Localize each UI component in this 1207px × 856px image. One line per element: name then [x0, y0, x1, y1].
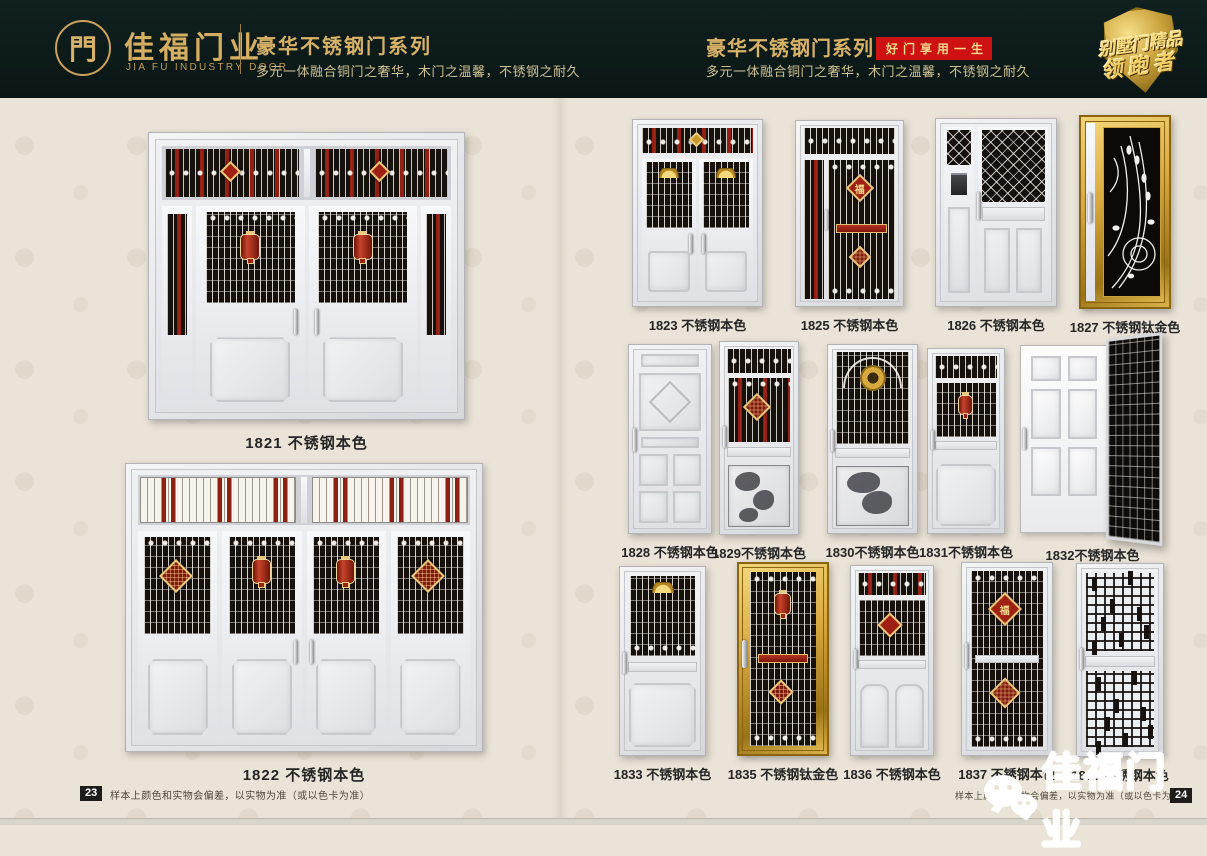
- product-card-1826: 1826 不锈钢本色: [935, 118, 1057, 334]
- logo-character: 門: [69, 28, 97, 68]
- door-image-1829: [719, 341, 799, 535]
- panel-grid: [639, 454, 701, 522]
- dots-row: [318, 214, 407, 223]
- brand-name: 佳福门业: [124, 23, 264, 67]
- transom-grille: [935, 356, 997, 378]
- etched-diamond: [649, 381, 691, 423]
- stile-grille: [426, 214, 446, 335]
- emboss-strip: [641, 437, 700, 448]
- dots-row: [828, 287, 895, 296]
- door-image-1830: [827, 344, 918, 534]
- main-grille: [750, 572, 816, 746]
- series-title-right: 豪华不锈钢门系列: [706, 32, 874, 61]
- transom-grille: [858, 573, 926, 595]
- mid-band: [1085, 656, 1155, 667]
- door-panel: [639, 454, 668, 486]
- page-fold: [552, 98, 568, 819]
- door-image-1826: [935, 118, 1057, 307]
- side-stile: [421, 206, 451, 408]
- transom-post: [301, 477, 307, 523]
- door-panel: [148, 659, 208, 735]
- wechat-eye: [994, 785, 999, 790]
- fan-ornament: [652, 582, 674, 593]
- main-leaf: [978, 127, 1048, 298]
- page-number-left: 23: [80, 786, 102, 801]
- dots-row: [971, 574, 1043, 583]
- knot-diamond: [159, 559, 193, 593]
- window-grille: [144, 537, 211, 634]
- product-card-1823: 1823 不锈钢本色: [632, 119, 763, 334]
- door-panel: [673, 454, 702, 486]
- door-panel: [323, 337, 403, 402]
- door-panel: [1068, 356, 1098, 381]
- door-panel: [1031, 389, 1061, 439]
- window-grille: [936, 383, 996, 437]
- main-grille: 福: [971, 571, 1043, 747]
- product-label: 1821 不锈钢本色: [245, 432, 368, 453]
- product-label: 1828 不锈钢本色: [621, 542, 719, 561]
- door-handle: [965, 643, 969, 669]
- product-label: 1829不锈钢本色: [712, 543, 806, 562]
- door-panel: [895, 684, 924, 748]
- product-card-1830: 1830不锈钢本色: [827, 344, 918, 561]
- door-body: 福: [804, 160, 895, 299]
- product-label: 1822 不锈钢本色: [243, 764, 366, 785]
- header-divider: [240, 24, 241, 74]
- header-bar: 門 佳福门业 JIA FU INDUSTRY DOOR 豪华不锈钢门系列 多元一…: [0, 0, 1207, 98]
- door-body: [162, 206, 451, 408]
- product-card-1821: 1821 不锈钢本色: [148, 132, 465, 453]
- peacock-art-panel: [1103, 127, 1161, 297]
- dots-row: [630, 644, 695, 653]
- etched-art-panel: [728, 465, 790, 527]
- dots-row: [229, 539, 296, 548]
- window-grille: [646, 162, 691, 229]
- door-handle: [831, 430, 835, 452]
- fu-diamond: [369, 161, 390, 182]
- door-panel: [1031, 447, 1061, 497]
- product-label: 1825 不锈钢本色: [801, 315, 899, 334]
- product-card-1827: 1827 不锈钢钛金色: [1079, 115, 1171, 336]
- lantern-ornament: [958, 395, 973, 415]
- door-panel: [1016, 228, 1043, 293]
- etch-motif: [739, 508, 758, 522]
- product-card-1831: 1831不锈钢本色: [927, 348, 1005, 561]
- product-label: 1832不锈钢本色: [1046, 545, 1140, 564]
- door-image-1833: [619, 566, 706, 756]
- door-handle: [1023, 428, 1027, 450]
- door-image-1836: [850, 565, 934, 756]
- dots-row: [750, 575, 816, 584]
- door-leaf: [391, 531, 470, 741]
- product-card-1833: 1833 不锈钢本色: [619, 566, 706, 783]
- door-panel: [316, 659, 376, 735]
- door-image-1827: [1079, 115, 1171, 309]
- main-grille: 福: [828, 160, 895, 299]
- door-panel: [400, 659, 460, 735]
- dots-row: [804, 137, 895, 146]
- lantern-ornament: [774, 593, 791, 615]
- dots-row: [935, 363, 997, 372]
- dots-row: [727, 357, 791, 366]
- product-label: 1830不锈钢本色: [826, 542, 920, 561]
- transom-grille: [315, 149, 449, 197]
- door-handle: [623, 652, 627, 674]
- wechat-eye: [1026, 801, 1030, 805]
- transom-post: [304, 149, 310, 197]
- door-handle: [294, 640, 298, 664]
- product-card-1835: 1835 不锈钢钛金色: [737, 562, 829, 783]
- product-card-1832: 1832不锈钢本色: [1020, 341, 1165, 564]
- door-image-1821: [148, 132, 465, 420]
- knot-diamond: [989, 677, 1020, 708]
- wechat-eye: [1018, 801, 1022, 805]
- fan-ornament: [716, 168, 736, 178]
- door-image-1832: [1020, 341, 1165, 537]
- product-card-1829: 1829不锈钢本色: [719, 341, 799, 562]
- transom-grille: [727, 349, 791, 373]
- product-label: 1827 不锈钢钛金色: [1070, 317, 1181, 336]
- lantern-ornament: [336, 559, 355, 584]
- fu-diamond: 福: [845, 174, 873, 202]
- side-stile: [162, 206, 192, 408]
- window-grille: [703, 162, 748, 229]
- knot-diamond: [768, 680, 793, 705]
- door-image-1831: [927, 348, 1005, 534]
- transom: [162, 146, 451, 200]
- knot-diamond: [848, 246, 871, 269]
- transom-grille: [804, 128, 895, 154]
- product-label: 1831不锈钢本色: [919, 542, 1013, 561]
- gold-medallion: [862, 367, 884, 389]
- transom: [138, 475, 470, 525]
- door-panel: [984, 228, 1011, 293]
- door-handle: [977, 192, 981, 220]
- watermark-text: 佳福门业: [1041, 740, 1207, 856]
- dots-row: [750, 734, 816, 743]
- door-image-1837: 福: [961, 562, 1053, 756]
- slogan-badge: 好门享用一生: [876, 37, 992, 60]
- wechat-icon: [984, 774, 1041, 822]
- mid-band: [858, 660, 926, 669]
- lantern-ornament: [252, 559, 271, 584]
- window-grille: [630, 576, 695, 656]
- perforated-grid: [1086, 573, 1154, 651]
- door-panel: [639, 491, 668, 523]
- mid-band: [628, 662, 697, 672]
- perforated-grid: [1086, 671, 1154, 747]
- side-leaf: [944, 127, 974, 298]
- door-handle: [633, 428, 637, 452]
- fan-ornament: [659, 168, 679, 178]
- door-panel: [860, 684, 889, 748]
- door-body: [642, 159, 753, 298]
- window-grille: [728, 378, 790, 442]
- red-band: [836, 224, 887, 233]
- fu-diamond: 福: [988, 592, 1022, 626]
- peacock-swirl-art: [1104, 128, 1160, 296]
- mid-band: [982, 207, 1045, 221]
- door-handle: [294, 309, 298, 335]
- fu-diamond: [220, 161, 241, 182]
- brand-logo-icon: 門: [55, 20, 111, 76]
- product-label: 1826 不锈钢本色: [947, 315, 1045, 334]
- etch-motif: [862, 491, 893, 514]
- window-grille: [229, 537, 296, 634]
- door-handle: [310, 640, 314, 664]
- mesh-screen-door: [1106, 332, 1162, 546]
- dots-row: [206, 214, 295, 223]
- lantern-ornament: [240, 234, 260, 260]
- lantern-ornament: [353, 234, 373, 260]
- door-panel: [948, 207, 970, 293]
- door-panel: [936, 464, 996, 526]
- product-label: 1823 不锈钢本色: [649, 315, 747, 334]
- transom-grille: [165, 149, 299, 197]
- door-image-1825: 福: [795, 120, 904, 307]
- mid-band: [727, 447, 791, 457]
- knot-diamond: [743, 393, 771, 421]
- fu-diamond: [877, 612, 902, 637]
- door-leaf: [309, 206, 418, 408]
- door-image-1838: [1076, 563, 1164, 757]
- stile-grille: [167, 214, 187, 335]
- grid-accent: [1096, 677, 1101, 691]
- product-card-1836: 1836 不锈钢本色: [850, 565, 934, 783]
- window-grille: [206, 212, 295, 303]
- door-panel: [648, 251, 689, 293]
- window-grille: [836, 352, 909, 444]
- etch-motif: [735, 472, 760, 491]
- product-card-1828: 1828 不锈钢本色: [628, 344, 712, 561]
- premium-shield-badge: 别墅门精品 领跑者: [1082, 6, 1198, 96]
- transom-grille: [312, 477, 468, 523]
- door-panel: [210, 337, 290, 402]
- transom-grille: [642, 128, 753, 153]
- window-grille: [313, 537, 380, 634]
- door-handle: [854, 649, 858, 669]
- panel-grid: [1029, 354, 1099, 524]
- door-leaf: [642, 159, 696, 298]
- door-image-1822: [125, 463, 483, 752]
- window-grille: [397, 537, 464, 634]
- intercom-unit: [951, 173, 968, 195]
- fu-character: 福: [1000, 602, 1010, 617]
- door-image-1823: [632, 119, 763, 307]
- door-handle: [1088, 193, 1093, 223]
- product-card-1825: 福 1825 不锈钢本色: [795, 120, 904, 334]
- window-grille: [318, 212, 407, 303]
- mid-band: [935, 441, 997, 450]
- etch-motif: [847, 472, 880, 493]
- door-leaf: [196, 206, 305, 408]
- product-label: 1836 不锈钢本色: [843, 764, 941, 783]
- door-handle: [689, 234, 693, 254]
- door-handle: [315, 309, 319, 335]
- emboss-strip: [641, 354, 700, 367]
- door-handle: [742, 640, 747, 668]
- series-title-left: 豪华不锈钢门系列: [256, 30, 432, 59]
- dots-row: [828, 163, 895, 172]
- door-body: [944, 127, 1048, 298]
- dots-row: [144, 539, 211, 548]
- door-handle: [723, 426, 727, 448]
- dots-row: [397, 539, 464, 548]
- mid-band: [975, 655, 1038, 663]
- door-panel: [232, 659, 292, 735]
- wechat-eye: [1007, 785, 1012, 790]
- door-panel: [629, 683, 696, 747]
- door-panel: [673, 491, 702, 523]
- knot-diamond: [411, 559, 445, 593]
- panel-grid: [860, 684, 924, 748]
- door-leaf: [222, 531, 301, 741]
- dots-row: [313, 539, 380, 548]
- door-handle: [1080, 648, 1084, 670]
- product-label: 1835 不锈钢钛金色: [728, 764, 839, 783]
- stile-grille: [804, 160, 824, 299]
- dots-row: [728, 380, 790, 389]
- door-handle: [931, 430, 935, 450]
- door-panel: [639, 373, 701, 432]
- door-panel: [1031, 356, 1061, 381]
- fu-character: 福: [855, 181, 865, 196]
- series-subtitle-left: 多元一体融合铜门之奢华，木门之温馨，不锈钢之耐久: [256, 61, 580, 80]
- grid-accent: [1092, 577, 1097, 591]
- mid-band: [835, 448, 910, 458]
- door-body: [138, 531, 470, 741]
- series-subtitle-right: 多元一体融合铜门之奢华，木门之温馨，不锈钢之耐久: [706, 61, 1030, 80]
- door-handle: [825, 210, 829, 230]
- door-panel: [1068, 447, 1098, 497]
- disclaimer-left: 样本上颜色和实物会偏差，以实物为准（或以色卡为准）: [110, 787, 370, 802]
- etched-art-panel: [836, 466, 909, 526]
- watermark: 佳福门业: [984, 740, 1207, 856]
- door-panel: [1068, 389, 1098, 439]
- lattice-window: [982, 130, 1045, 202]
- dots-row: [858, 580, 926, 589]
- window-grille: [859, 600, 925, 656]
- door-image-1835: [737, 562, 829, 756]
- door-panel: [705, 251, 746, 293]
- transom-grille: [140, 477, 296, 523]
- catalog-spread: 門 佳福门业 JIA FU INDUSTRY DOOR 豪华不锈钢门系列 多元一…: [0, 0, 1207, 825]
- door-image-1828: [628, 344, 712, 534]
- product-label: 1833 不锈钢本色: [614, 764, 712, 783]
- door-leaf: [138, 531, 217, 741]
- etch-motif: [753, 490, 775, 510]
- lattice-window: [947, 130, 971, 164]
- red-band: [758, 654, 808, 663]
- product-card-1822: 1822 不锈钢本色: [125, 463, 483, 785]
- six-panel-door: [1020, 345, 1108, 533]
- door-leaf: [307, 531, 386, 741]
- door-leaf: [699, 159, 753, 298]
